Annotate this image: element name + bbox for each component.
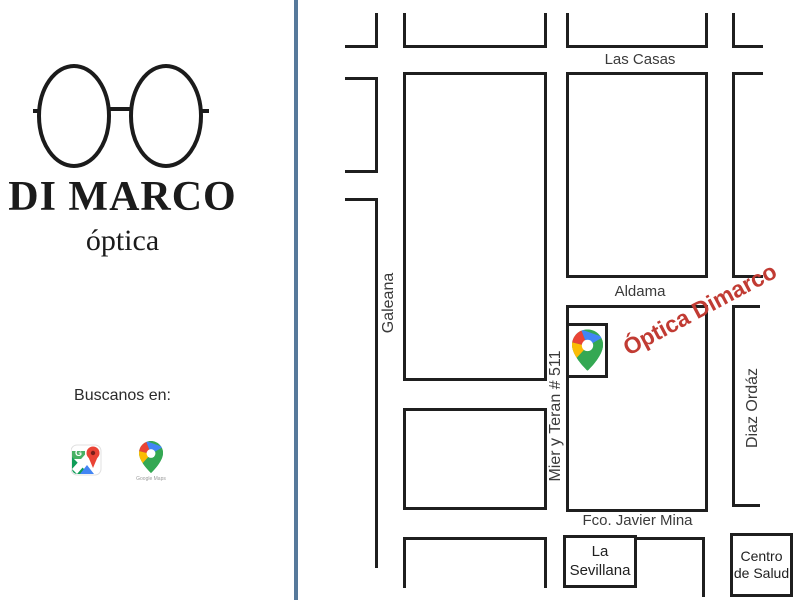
map-block: [566, 13, 708, 48]
map-block: [403, 408, 547, 510]
centro-de-salud-label-line2: de Salud: [734, 565, 789, 583]
map-block: [403, 13, 547, 48]
divider-line: [294, 0, 298, 600]
street-label-las-casas: Las Casas: [585, 51, 695, 68]
street-label-mier-y-teran: Mier y Teran # 511: [547, 331, 565, 501]
google-maps-app-icon: G: [71, 443, 103, 480]
street-label-aldama: Aldama: [600, 283, 680, 300]
google-maps-pin-icon: [139, 441, 163, 473]
map-block: [566, 72, 708, 278]
map-block: [403, 72, 547, 381]
map-block: [345, 77, 378, 173]
glasses-logo-icon: [33, 63, 209, 171]
map-block: [345, 198, 378, 568]
la-sevillana-label-line2: Sevillana: [570, 562, 631, 581]
svg-text:G: G: [75, 448, 82, 458]
map-block: [345, 13, 378, 48]
la-sevillana-building: La Sevillana: [563, 535, 637, 588]
centro-de-salud-label-line1: Centro: [740, 548, 782, 566]
street-label-fco-javier-mina: Fco. Javier Mina: [570, 512, 705, 529]
brand-tagline: óptica: [0, 224, 245, 258]
la-sevillana-label-line1: La: [592, 543, 609, 562]
map-block: [732, 13, 763, 48]
street-label-galeana: Galeana: [380, 253, 398, 353]
brand-name: DI MARCO: [0, 173, 245, 221]
flyer-canvas: DI MARCO óptica Buscanos en: G: [0, 0, 800, 600]
map-block: [732, 72, 763, 278]
google-maps-caption: Google Maps: [127, 476, 175, 482]
find-us-label: Buscanos en:: [0, 387, 245, 405]
brand-panel: DI MARCO óptica Buscanos en: G: [0, 0, 245, 600]
centro-de-salud-building: Centro de Salud: [730, 533, 793, 597]
map-block: [403, 537, 547, 588]
street-label-diaz-ordaz: Diaz Ordáz: [744, 353, 762, 463]
